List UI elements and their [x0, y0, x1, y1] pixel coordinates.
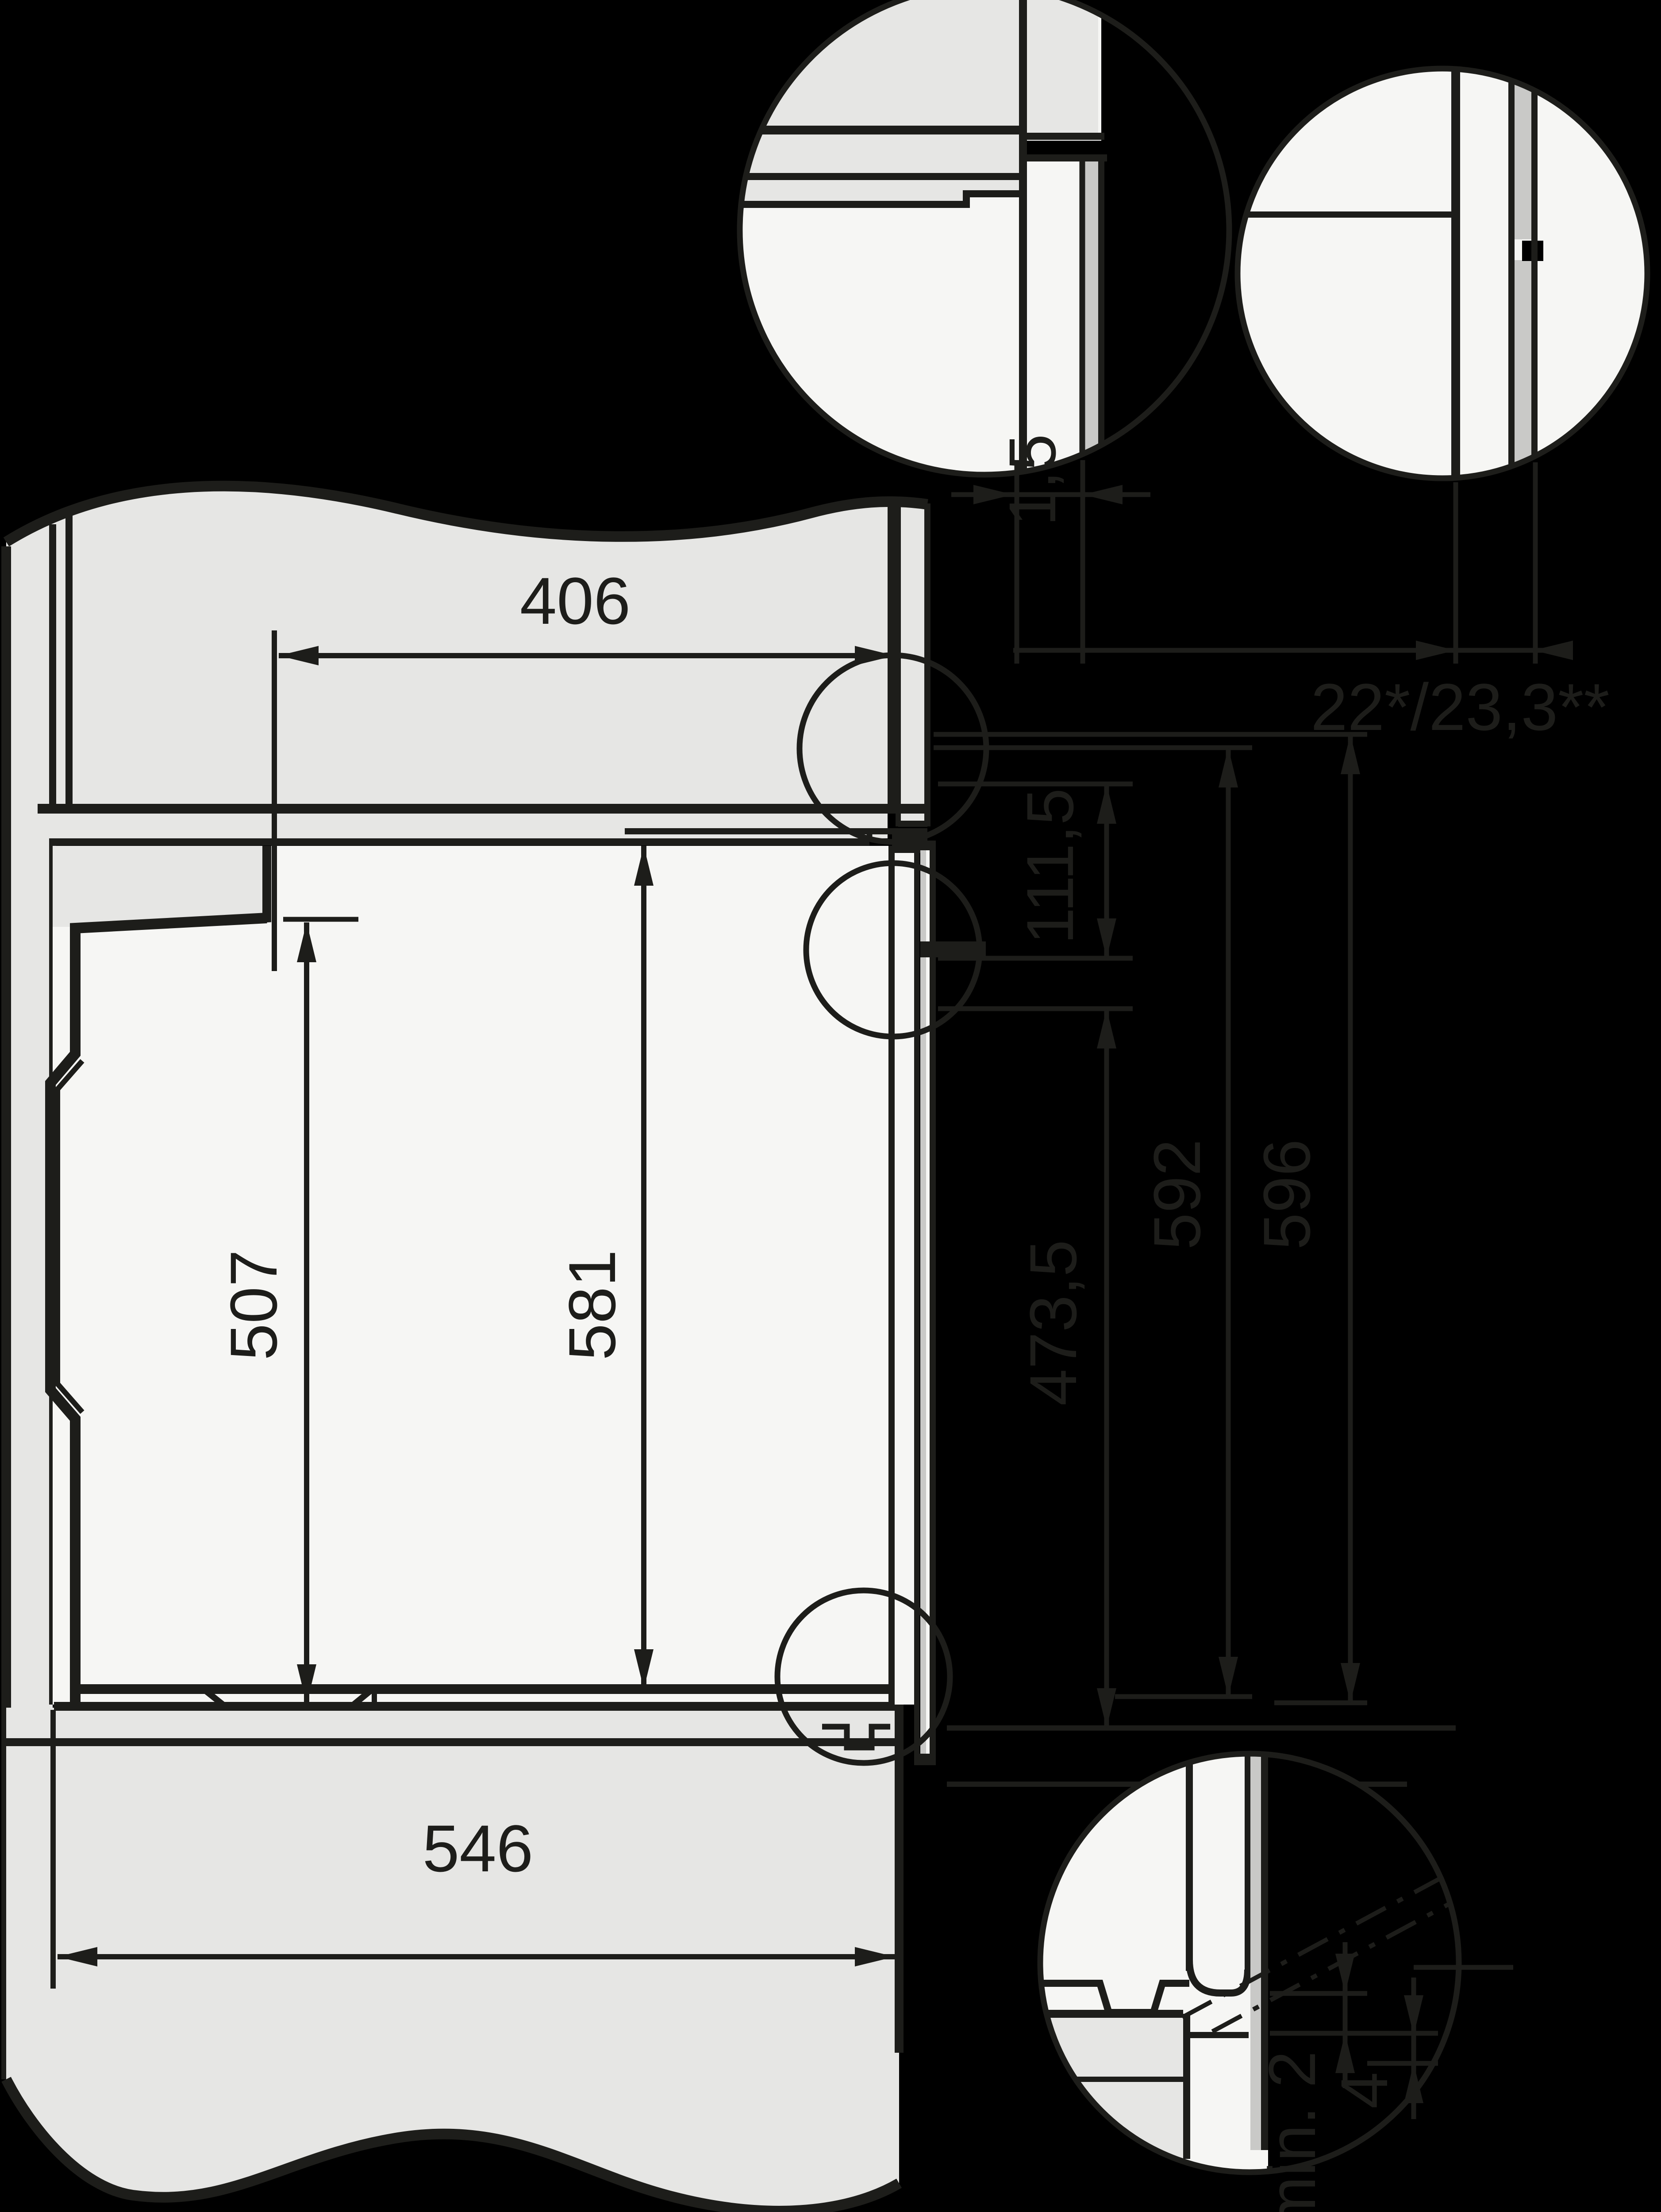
top-shelf [38, 814, 888, 838]
dim-111-5-label: 111,5 [1013, 788, 1087, 944]
front-frame-depth-dimension: 22*/23,3** [1013, 462, 1610, 744]
installation-diagram: 406 546 507 581 111,5 [0, 0, 1661, 2212]
dim-min2-label: min. 2 [1255, 2051, 1329, 2212]
cabinet-section [6, 486, 986, 2211]
side-wall-front-face [895, 853, 914, 1705]
dim-406-label: 406 [520, 564, 631, 638]
dim-507-label: 507 [216, 1250, 291, 1360]
frame-bracket [920, 941, 986, 957]
dim-592-label: 592 [1140, 1139, 1214, 1250]
diagram-canvas: 406 546 507 581 111,5 [0, 0, 1661, 2212]
dim-4-label: 4 [1327, 2072, 1401, 2108]
dim-22-23-label: 22*/23,3** [1311, 670, 1610, 744]
dim-1-5-label: 1,5 [995, 434, 1069, 526]
dim-546-label: 546 [423, 1811, 533, 1886]
detail-view-top-left [737, 0, 1238, 484]
dim-581-label: 581 [555, 1250, 629, 1360]
dim-473-5-label: 473,5 [1016, 1240, 1090, 1406]
dim-596-label: 596 [1250, 1139, 1324, 1250]
